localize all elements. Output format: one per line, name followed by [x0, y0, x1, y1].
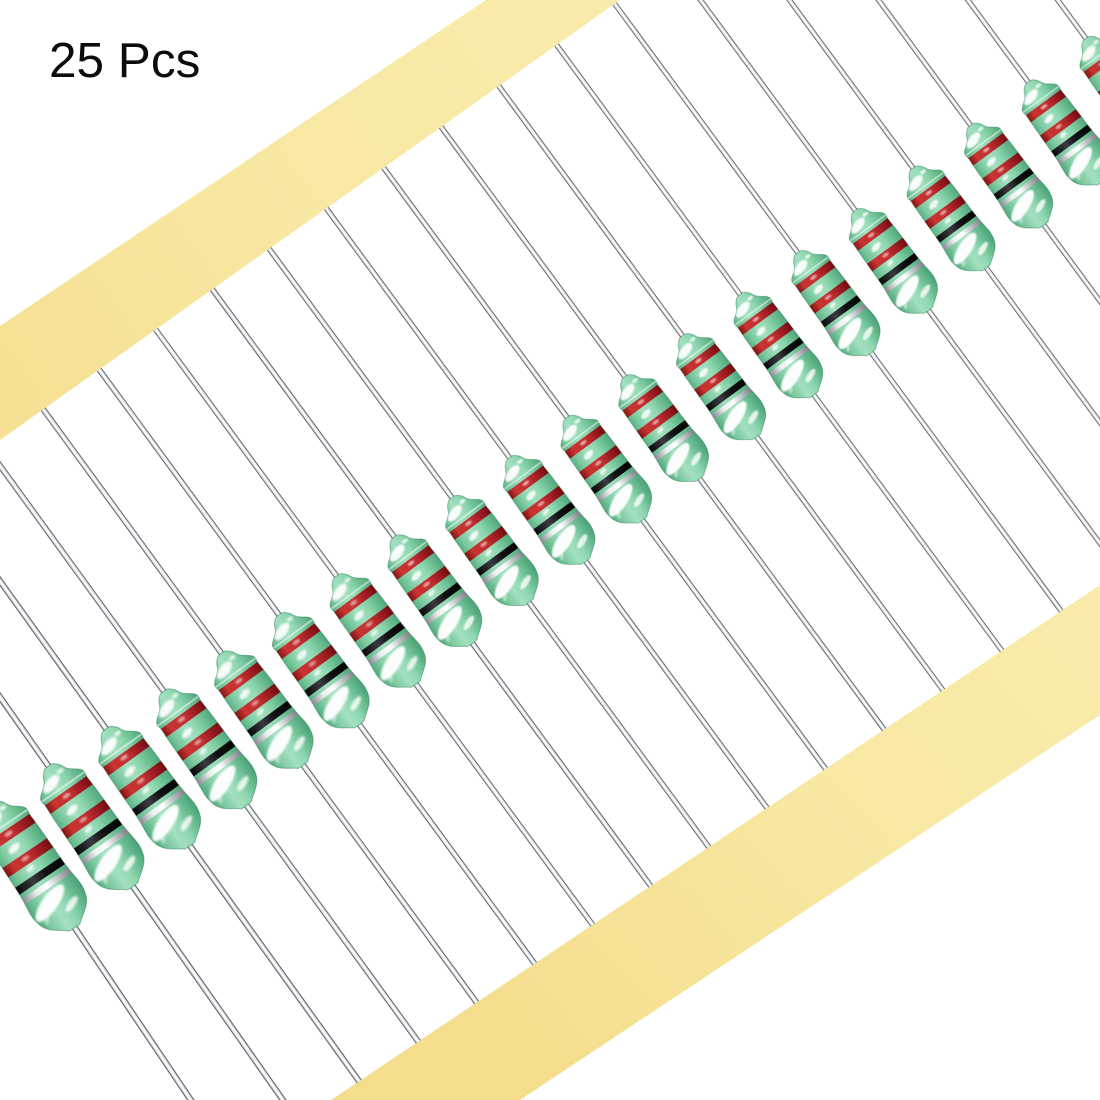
- svg-text:25 Pcs: 25 Pcs: [49, 33, 200, 88]
